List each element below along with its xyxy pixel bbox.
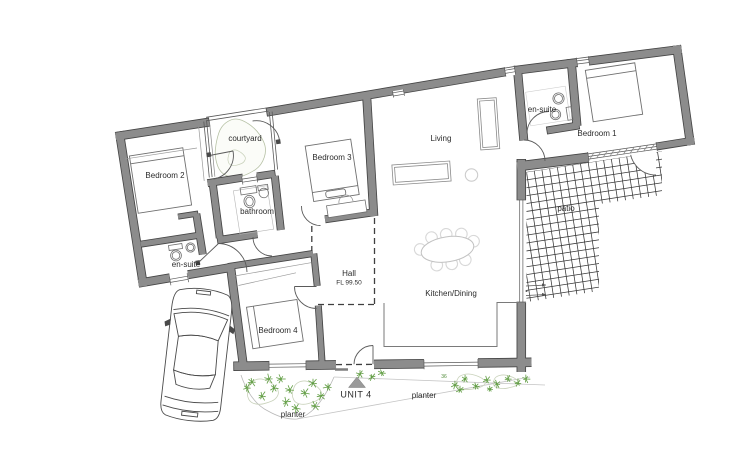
svg-text:courtyard: courtyard	[228, 134, 261, 143]
svg-text:Hall: Hall	[342, 269, 356, 278]
svg-text:Kitchen/Dining: Kitchen/Dining	[425, 289, 477, 298]
svg-text:UNIT 4: UNIT 4	[340, 390, 371, 400]
svg-text:planter: planter	[412, 391, 437, 400]
svg-text:Living: Living	[431, 134, 452, 143]
svg-text:Bedroom 2: Bedroom 2	[145, 171, 185, 180]
svg-text:bathroom: bathroom	[240, 207, 274, 216]
svg-text:en-suite: en-suite	[528, 105, 557, 114]
svg-text:patio: patio	[557, 204, 575, 213]
svg-text:Bedroom 1: Bedroom 1	[577, 129, 617, 138]
svg-text:36: 36	[441, 374, 447, 380]
svg-text:Bedroom 3: Bedroom 3	[312, 153, 352, 162]
svg-text:FL 99.50: FL 99.50	[336, 280, 362, 287]
svg-text:planter: planter	[281, 410, 306, 419]
svg-text:en-suite: en-suite	[172, 260, 201, 269]
svg-text:Bedroom 4: Bedroom 4	[258, 326, 298, 335]
